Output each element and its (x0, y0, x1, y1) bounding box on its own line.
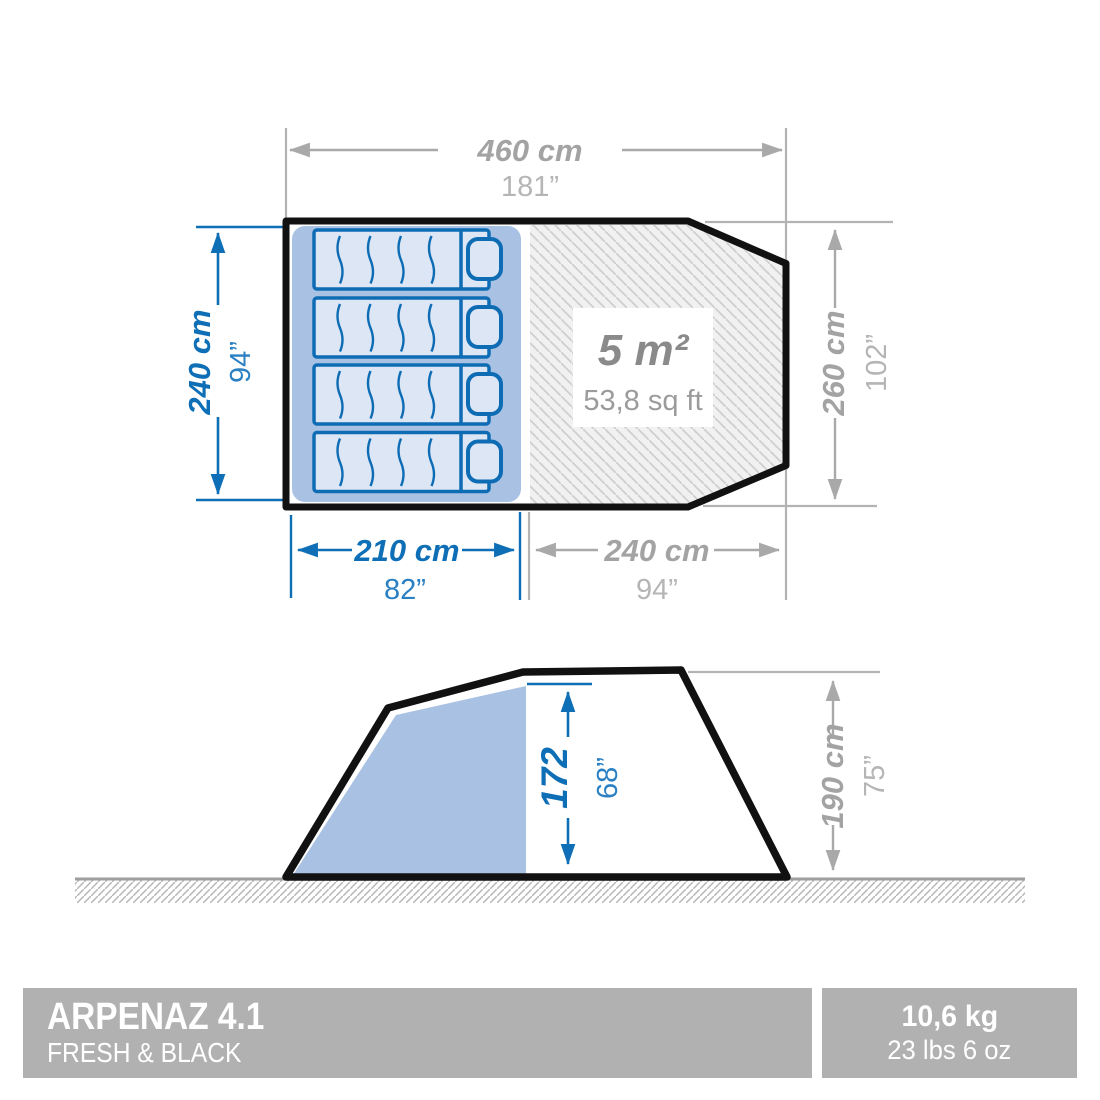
dim-living-width-cm: 240 cm (603, 533, 709, 568)
tent-dimensions-diagram: 5 m² 53,8 sq ft 460 cm 181” 240 cm 94” 2… (0, 0, 1100, 1100)
area-m2-label: 5 m² (598, 326, 690, 375)
side-view: 172 68” 190 cm 75” (75, 670, 1025, 903)
dim-total-width: 460 cm 181” (290, 133, 782, 203)
dim-sleeping-width-inch: 82” (384, 574, 426, 606)
dim-sleeping-depth-cm: 240 cm (182, 309, 217, 415)
diagram-canvas: 5 m² 53,8 sq ft 460 cm 181” 240 cm 94” 2… (0, 0, 1100, 1100)
dim-total-depth-inch: 102” (861, 334, 893, 392)
dim-living-width-inch: 94” (636, 574, 678, 606)
product-model: ARPENAZ 4.1 (47, 997, 264, 1037)
weight-imperial: 23 lbs 6 oz (887, 1035, 1011, 1066)
dim-living-width: 240 cm 94” (536, 533, 779, 606)
dim-sleeping-width-cm: 210 cm (353, 533, 459, 568)
area-sqft-label: 53,8 sq ft (583, 385, 702, 417)
product-name-badge: ARPENAZ 4.1 FRESH & BLACK (23, 988, 812, 1078)
dim-total-width-cm: 460 cm (476, 133, 582, 168)
dim-total-height: 190 cm 75” (815, 681, 891, 870)
product-weight-badge: 10,6 kg 23 lbs 6 oz (822, 988, 1077, 1078)
sleeping-pad (314, 433, 501, 492)
dim-sleeping-depth-inch: 94” (225, 341, 257, 383)
dim-total-height-inch: 75” (859, 755, 891, 797)
weight-metric: 10,6 kg (901, 1000, 998, 1035)
dim-sleeping-depth: 240 cm 94” (182, 233, 257, 494)
product-series: FRESH & BLACK (47, 1038, 241, 1069)
dim-interior-height-cm: 172 (534, 747, 575, 809)
dim-total-width-inch: 181” (501, 171, 559, 203)
dim-total-depth: 260 cm 102” (816, 230, 893, 499)
top-view: 5 m² 53,8 sq ft 460 cm 181” 240 cm 94” 2… (182, 128, 893, 606)
sleeping-pad (314, 298, 501, 357)
dim-interior-height-inch: 68” (592, 757, 624, 799)
dim-total-depth-cm: 260 cm (816, 310, 851, 416)
dim-total-height-cm: 190 cm (815, 723, 850, 828)
sleeping-pad (314, 365, 501, 424)
sleeping-cabin-profile (293, 686, 526, 875)
sleeping-pad (314, 230, 501, 289)
ground-hatch (75, 879, 1025, 903)
dim-sleeping-width: 210 cm 82” (298, 533, 514, 606)
